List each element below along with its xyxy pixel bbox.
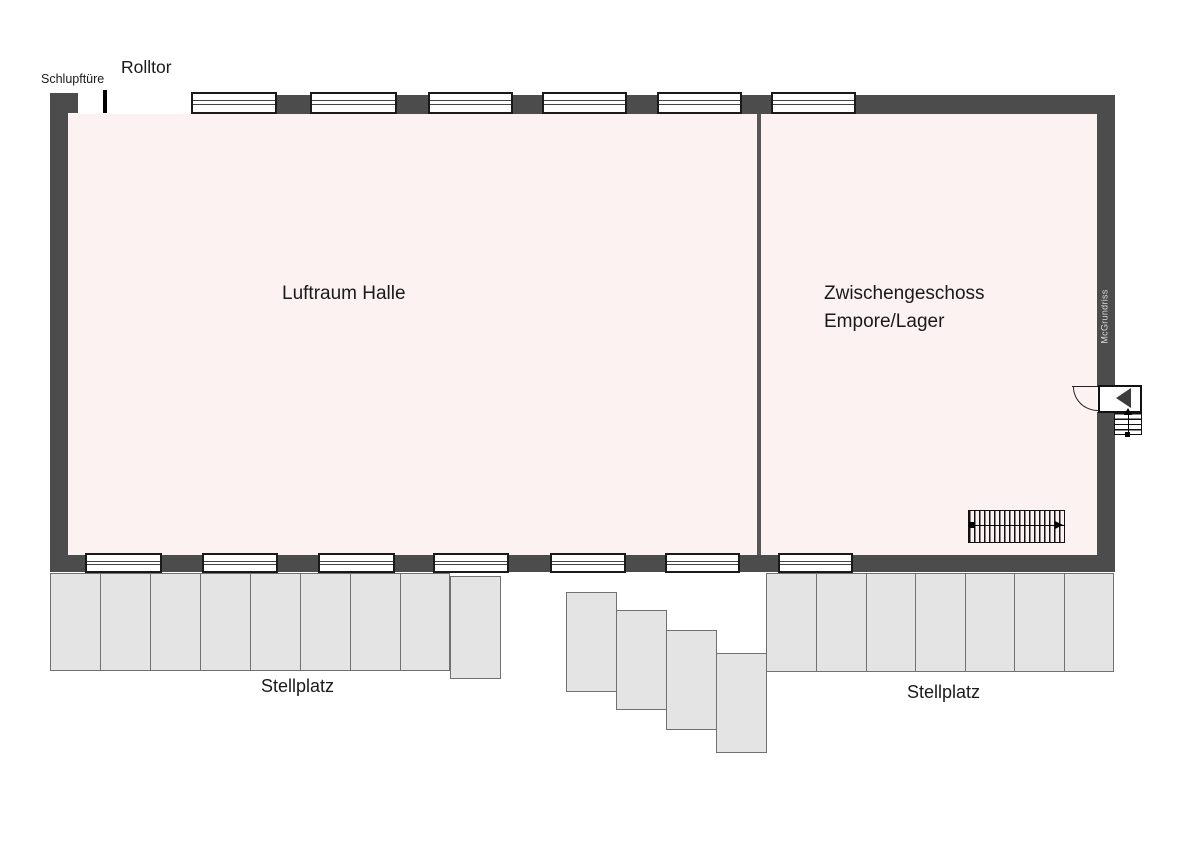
staircase-start-square	[969, 522, 975, 528]
parking-stall	[200, 573, 251, 671]
room-label-mezzanine: Zwischengeschoss Empore/Lager	[824, 280, 1044, 335]
parking-stall	[400, 573, 450, 671]
parking-stall	[616, 610, 667, 710]
parking-stall	[50, 573, 101, 671]
room-label-mezzanine-line1: Zwischengeschoss	[824, 283, 985, 304]
parking-stall	[300, 573, 351, 671]
exterior-steps-arrow-icon	[1124, 408, 1132, 415]
window	[191, 92, 277, 114]
parking-stall	[1064, 573, 1114, 672]
window	[318, 553, 395, 573]
parking-stall	[866, 573, 916, 672]
window	[665, 553, 740, 573]
rolltor-label: Rolltor	[121, 57, 172, 78]
window	[433, 553, 509, 573]
stellplatz-label-left: Stellplatz	[261, 676, 334, 697]
parking-stall	[816, 573, 867, 672]
parking-stall	[250, 573, 301, 671]
floorplan-canvas: Schlupftüre Rolltor Luftraum Halle Zwisc…	[0, 0, 1200, 848]
window	[542, 92, 627, 114]
window	[778, 553, 853, 573]
stellplatz-label-right: Stellplatz	[907, 682, 980, 703]
wall-room-divider	[757, 114, 761, 555]
room-label-hall: Luftraum Halle	[282, 280, 406, 308]
parking-stall	[965, 573, 1015, 672]
parking-stall	[100, 573, 151, 671]
schlupftuere-label: Schlupftüre	[41, 72, 104, 86]
entrance-arrow-icon	[1116, 388, 1131, 408]
schlupftuere-door-mark	[103, 90, 107, 113]
parking-stall	[150, 573, 201, 671]
parking-stall	[566, 592, 617, 692]
wall-left	[50, 93, 68, 572]
parking-stall	[350, 573, 401, 671]
window	[657, 92, 742, 114]
parking-stall	[666, 630, 717, 730]
parking-stall	[450, 576, 501, 679]
staircase-direction-arrow-icon	[1055, 521, 1063, 529]
room-label-mezzanine-line2: Empore/Lager	[824, 311, 944, 332]
window	[85, 553, 162, 573]
parking-stall	[716, 653, 767, 753]
parking-stall	[766, 573, 817, 672]
window	[771, 92, 856, 114]
window	[310, 92, 397, 114]
door-leaf	[1072, 386, 1099, 387]
parking-stall	[1014, 573, 1065, 672]
parking-stall	[915, 573, 966, 672]
watermark-text: McGrundriss	[1100, 267, 1113, 367]
exterior-steps-start-dot	[1125, 432, 1130, 437]
window	[428, 92, 513, 114]
window	[202, 553, 278, 573]
window	[550, 553, 626, 573]
staircase-walkline	[968, 525, 1065, 526]
interior-staircase	[968, 510, 1065, 543]
